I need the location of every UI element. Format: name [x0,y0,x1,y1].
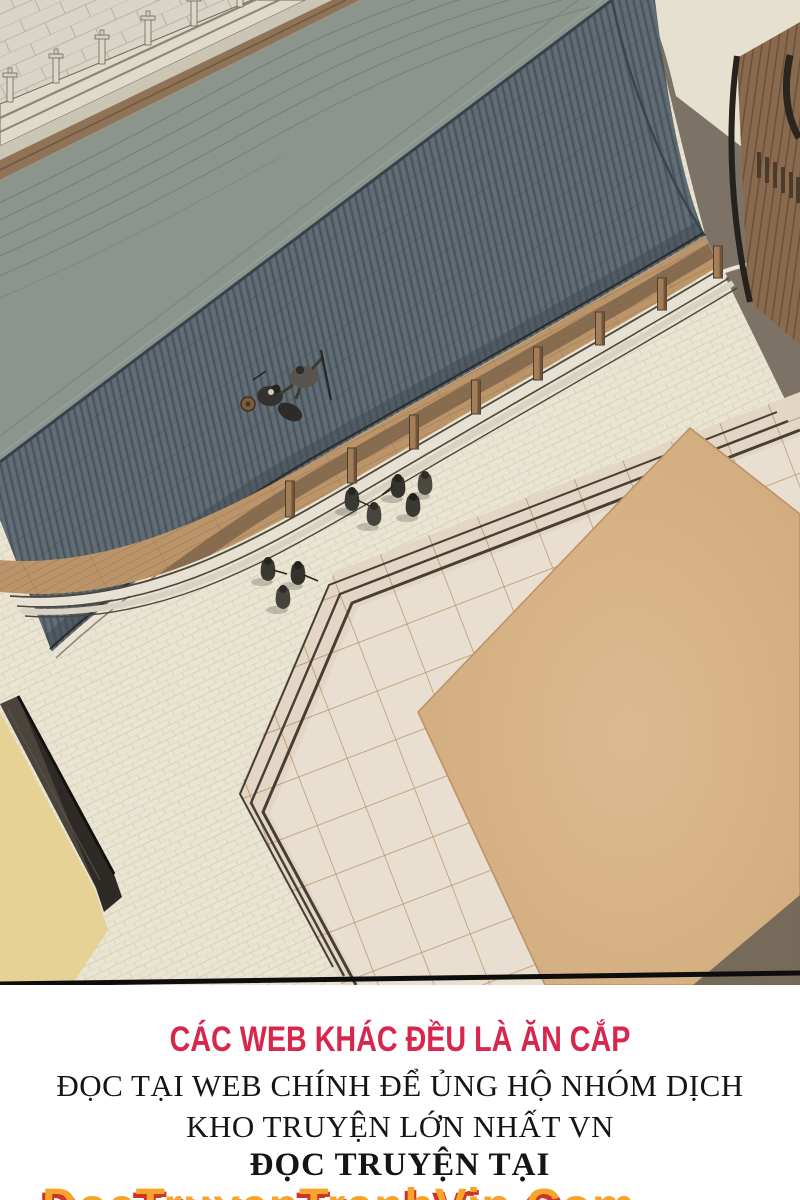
warning-text: CÁC WEB KHÁC ĐỀU LÀ ĂN CẮP [72,1020,728,1060]
comic-panel [0,0,800,985]
site-logo: DocTruyenTranhVip.Com [42,1183,758,1200]
site-logo-text: DocTruyenTranhVip.Com [42,1183,758,1200]
webtoon-page: CÁC WEB KHÁC ĐỀU LÀ ĂN CẮP ĐỌC TẠI WEB C… [0,0,800,1200]
support-text: ĐỌC TẠI WEB CHÍNH ĐỂ ỦNG HỘ NHÓM DỊCH [0,1068,800,1104]
read-at-text: ĐỌC TRUYỆN TẠI [0,1147,800,1184]
tagline-text: KHO TRUYỆN LỚN NHẤT VN [0,1109,800,1145]
